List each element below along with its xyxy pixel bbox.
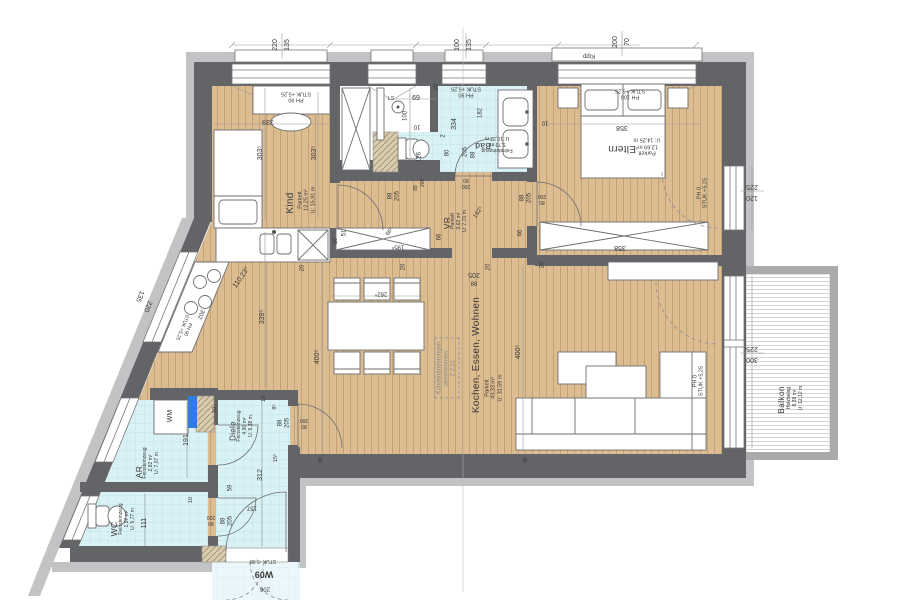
floor-diele-tile (216, 398, 290, 548)
floor-lobby-tile (212, 562, 300, 600)
washing-machine (154, 400, 188, 434)
window-bad (442, 50, 486, 84)
wardrobe-kind (342, 88, 370, 170)
window-eltern (552, 48, 702, 84)
door-eltern-balcony (724, 166, 744, 230)
bed-kind (214, 130, 262, 228)
toilet-wc (88, 504, 126, 528)
toilet-bad (398, 138, 429, 160)
window-kind (232, 50, 330, 84)
sideboard (608, 262, 718, 280)
window-wohnen-balcony (724, 276, 744, 448)
floorplan-canvas: KindParkett12,25 m²U: 15,91 mBadFeinstei… (0, 0, 900, 600)
vanity-bad (498, 90, 533, 168)
shaft-blue (188, 396, 197, 428)
dining-table (328, 278, 424, 374)
entry-door-threshold (226, 548, 288, 562)
wardrobe-eltern (540, 222, 708, 250)
floorplan-drawing (0, 0, 900, 600)
hall-closet (336, 228, 430, 250)
window-laundry (368, 50, 416, 84)
floor-balcony-deck (746, 274, 830, 454)
